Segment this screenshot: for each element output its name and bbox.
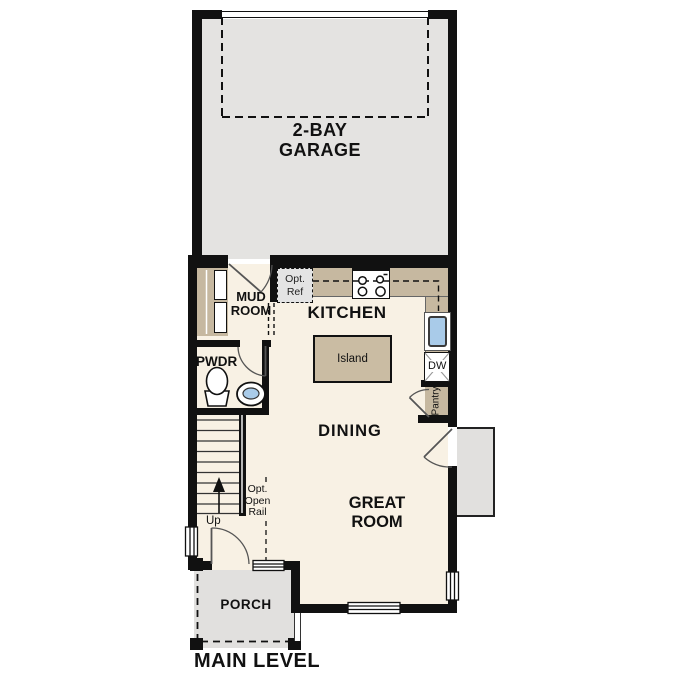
- pantry-label: Pantry: [431, 387, 442, 416]
- garage-door-dashed-outline: [222, 17, 428, 117]
- great-room-right-window: [447, 572, 459, 600]
- entry-door: [212, 528, 250, 564]
- stove-burners: [358, 275, 387, 297]
- front-sidelite-window: [253, 561, 284, 571]
- dw-label: DW: [427, 360, 447, 372]
- up-label: Up: [206, 515, 221, 527]
- mudroom-label-line1: MUD: [222, 290, 280, 304]
- floor-plan: Opt. Ref Island: [0, 0, 687, 687]
- garage-label-line1: 2-BAY: [240, 120, 400, 140]
- pwdr-label: PWDR: [196, 354, 237, 369]
- garage-label-line2: GARAGE: [240, 140, 400, 160]
- toilet-icon: [205, 368, 229, 407]
- dining-label: DINING: [310, 422, 390, 441]
- pwdr-door: [238, 346, 266, 376]
- garage-room-label: 2-BAY GARAGE: [240, 120, 400, 160]
- opt-open-rail-line1: Opt.: [243, 484, 272, 496]
- opt-open-rail-label: Opt. Open Rail: [243, 484, 272, 519]
- main-level-title: MAIN LEVEL: [194, 650, 320, 673]
- mudroom-label: MUD ROOM: [222, 290, 280, 318]
- stair-treads: [197, 420, 239, 514]
- rear-door: [424, 429, 452, 467]
- kitchen-label: KITCHEN: [298, 303, 396, 323]
- plan-symbols: [0, 0, 687, 687]
- opt-open-rail-line3: Rail: [243, 507, 272, 519]
- sink-icon: [237, 383, 265, 406]
- mudroom-label-line2: ROOM: [222, 304, 280, 318]
- great-room-label-line1: GREAT: [338, 494, 416, 513]
- mudroom-door: [229, 264, 272, 292]
- entry-left-window: [186, 527, 198, 556]
- great-room-label-line2: ROOM: [338, 513, 416, 532]
- great-room-label: GREAT ROOM: [338, 494, 416, 531]
- great-room-front-window: [348, 603, 400, 614]
- pantry-door: [410, 389, 430, 417]
- porch-label: PORCH: [213, 597, 279, 612]
